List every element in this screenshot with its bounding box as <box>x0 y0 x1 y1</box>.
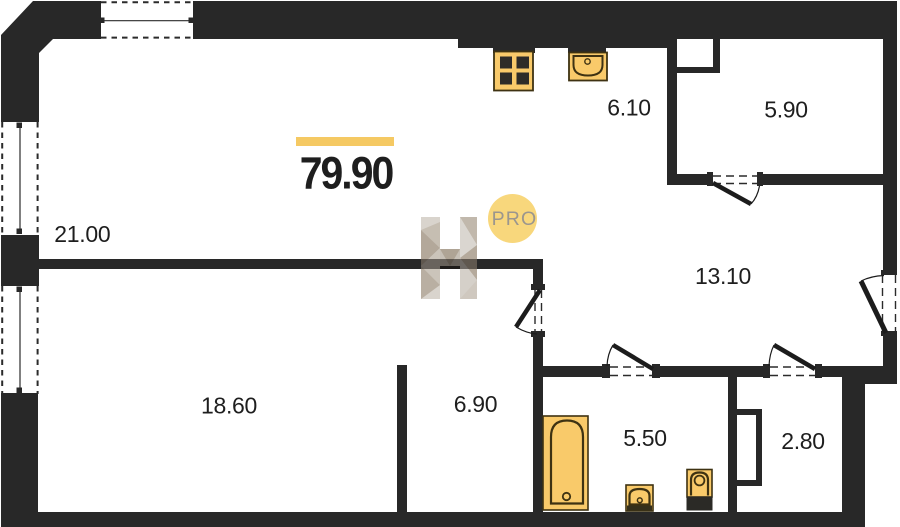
svg-text:13.10: 13.10 <box>695 263 751 289</box>
svg-text:5.50: 5.50 <box>623 425 667 451</box>
svg-text:5.90: 5.90 <box>764 97 808 123</box>
svg-text:2.80: 2.80 <box>781 428 825 454</box>
svg-text:6.10: 6.10 <box>607 95 651 121</box>
svg-text:18.60: 18.60 <box>201 393 257 419</box>
svg-text:79.90: 79.90 <box>300 149 394 199</box>
svg-text:PRO: PRO <box>492 208 538 230</box>
svg-text:21.00: 21.00 <box>54 221 110 247</box>
svg-text:6.90: 6.90 <box>454 391 498 417</box>
